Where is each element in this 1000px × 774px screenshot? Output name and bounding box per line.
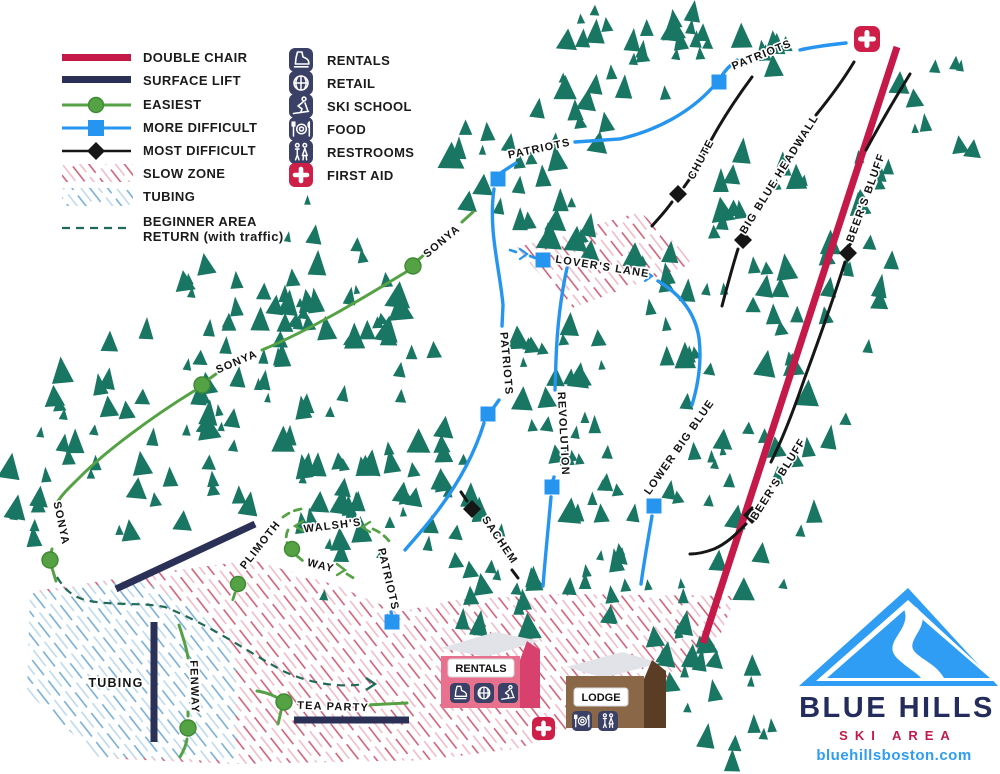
service-label-retail: RETAIL <box>327 76 375 91</box>
label-tubing-area: TUBING <box>88 676 143 690</box>
legend-label-beginner-area: BEGINNER AREA <box>143 214 257 229</box>
service-label-restrooms: RESTROOMS <box>327 145 414 160</box>
legend-more-difficult-swatch <box>62 120 131 136</box>
legend: DOUBLE CHAIR SURFACE LIFT EASIEST MORE D… <box>62 50 284 244</box>
legend-label-easiest: EASIEST <box>143 97 201 112</box>
legend-slow-zone-swatch <box>62 164 133 182</box>
legend-label-more-difficult: MORE DIFFICULT <box>143 120 257 135</box>
retail-icon <box>294 76 308 90</box>
rentals-building-label: RENTALS <box>455 663 506 675</box>
label-way: WAY <box>306 557 336 575</box>
mountain-logo-icon <box>799 588 998 686</box>
legend-label-surface-lift: SURFACE LIFT <box>143 73 241 88</box>
label-revolution: REVOLUTION <box>555 392 571 477</box>
logo-website: bluehillsboston.com <box>816 747 971 764</box>
legend-surface-lift-swatch <box>62 76 131 83</box>
first-aid-base <box>532 717 555 740</box>
label-patriots-upper: PATRIOTS <box>507 137 572 162</box>
service-label-ski-school: SKI SCHOOL <box>327 99 412 114</box>
legend-double-chair-swatch <box>62 54 131 61</box>
service-label-rentals: RENTALS <box>327 53 390 68</box>
logo-title: BLUE HILLS <box>799 692 995 724</box>
legend-easiest-swatch <box>62 98 131 113</box>
legend-tubing-swatch <box>62 188 133 206</box>
retail-icon <box>478 687 490 699</box>
legend-label-beginner-return: RETURN (with traffic) <box>143 229 284 244</box>
legend-label-most-difficult: MOST DIFFICULT <box>143 143 256 158</box>
legend-most-difficult-swatch <box>62 142 131 160</box>
legend-label-tubing: TUBING <box>143 189 195 204</box>
services-legend: RENTALS RETAIL SKI SCHOOL FOOD RESTROOMS… <box>289 48 414 187</box>
brand-logo: BLUE HILLS SKI AREA bluehillsboston.com <box>799 588 998 764</box>
label-big-blue-headwall: BIG BLUE HEADWALL <box>738 113 821 237</box>
label-sachem: SACHEM <box>479 514 520 566</box>
service-label-food: FOOD <box>327 122 366 137</box>
label-fenway: FENWAY <box>187 660 201 714</box>
label-tea-party: TEA PARTY <box>297 700 369 715</box>
label-sonya-top: SONYA <box>421 223 463 261</box>
legend-label-slow-zone: SLOW ZONE <box>143 166 225 181</box>
lodge-building: LODGE <box>566 652 666 731</box>
label-patriots-lower: PATRIOTS <box>375 547 401 612</box>
trail-map: PATRIOTS PATRIOTS PATRIOTS PATRIOTS SONY… <box>0 0 1000 774</box>
label-lower-big-blue: LOWER BIG BLUE <box>642 397 717 497</box>
trail-map-page: PATRIOTS PATRIOTS PATRIOTS PATRIOTS SONY… <box>0 0 1000 774</box>
logo-subtitle: SKI AREA <box>839 728 957 743</box>
label-sonya-bottom: SONYA <box>50 501 71 547</box>
first-aid-top <box>854 26 880 52</box>
service-label-first-aid: FIRST AID <box>327 168 394 183</box>
label-chute: CHUTE <box>686 137 717 181</box>
rentals-service-icons <box>450 683 518 703</box>
lodge-building-label: LODGE <box>581 692 620 704</box>
legend-label-double-chair: DOUBLE CHAIR <box>143 50 248 65</box>
